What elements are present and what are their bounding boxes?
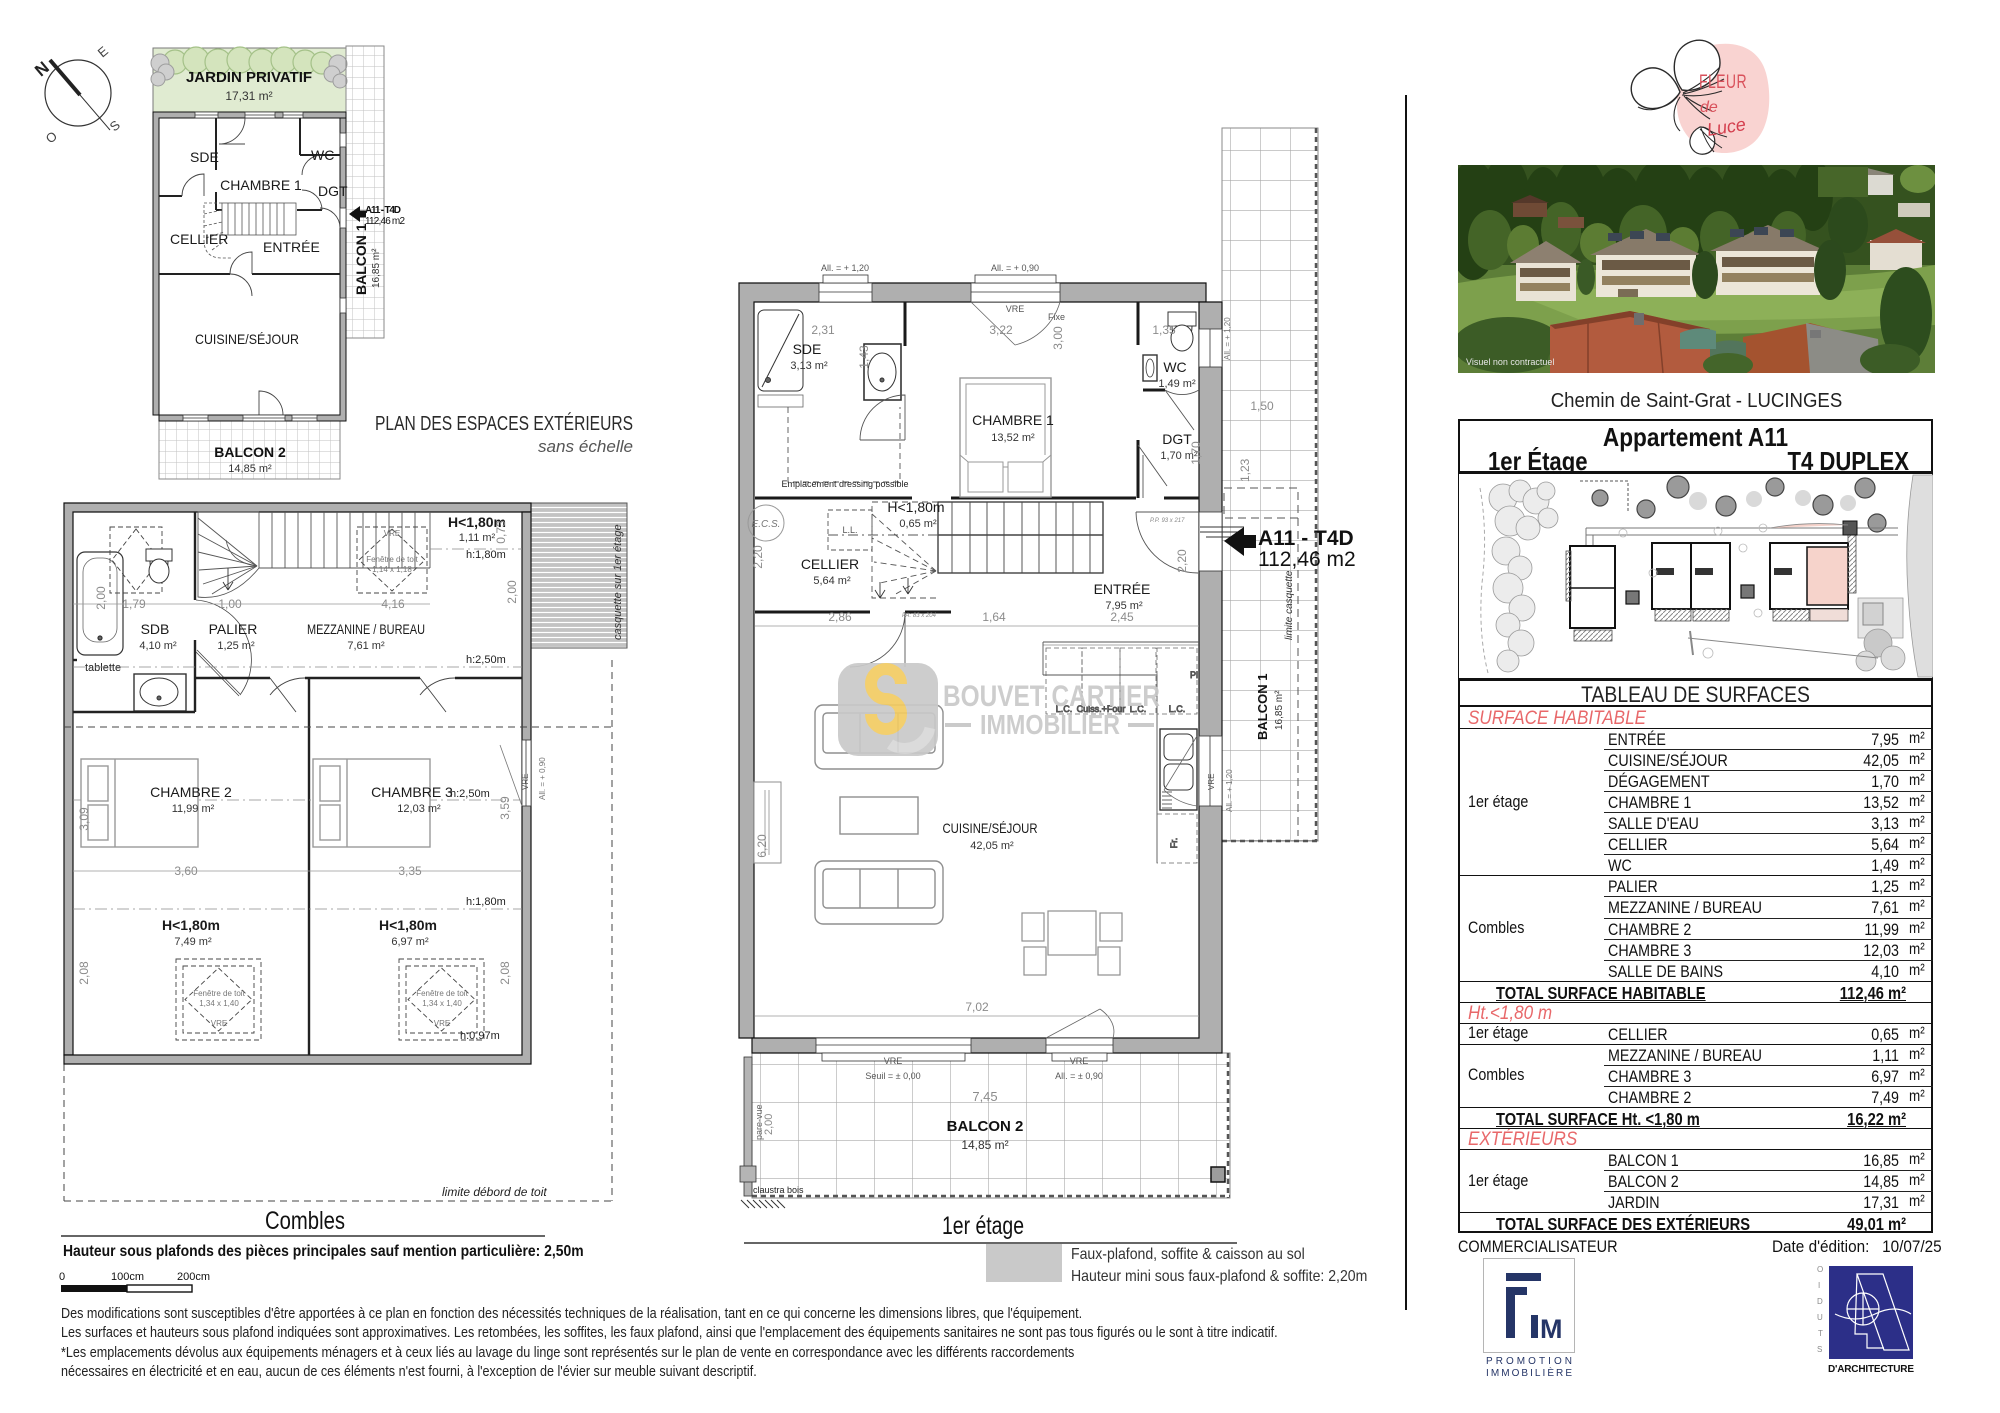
svg-text:casquette sur 1er étage: casquette sur 1er étage	[612, 524, 624, 640]
svg-text:1,70: 1,70	[1189, 441, 1203, 465]
svg-text:3,59: 3,59	[498, 796, 512, 820]
svg-text:CELLIER: CELLIER	[801, 556, 859, 572]
svg-text:L.L.: L.L.	[842, 525, 857, 535]
svg-text:T: T	[1818, 1329, 1823, 1338]
svg-text:JARDIN PRIVATIF: JARDIN PRIVATIF	[186, 69, 312, 86]
svg-text:14,85 m²: 14,85 m²	[228, 463, 272, 475]
svg-text:2,45: 2,45	[1110, 610, 1134, 624]
svg-text:Fenêtre de toit: Fenêtre de toit	[366, 555, 418, 564]
svg-text:sans échelle: sans échelle	[538, 437, 633, 456]
svg-text:BALCON 2: BALCON 2	[947, 1118, 1024, 1135]
svg-text:SDE: SDE	[190, 149, 219, 165]
svg-text:BALCON 1: BALCON 1	[353, 223, 369, 295]
svg-text:112,46 m2: 112,46 m2	[365, 216, 405, 227]
svg-text:H<1,80m: H<1,80m	[887, 499, 944, 515]
svg-text:H<1,80m: H<1,80m	[162, 917, 220, 933]
svg-text:100cm: 100cm	[111, 1271, 144, 1283]
svg-text:13,52 m²: 13,52 m²	[991, 432, 1035, 444]
svg-text:A11 - T4D: A11 - T4D	[1258, 527, 1354, 550]
svg-text:7,02: 7,02	[965, 1000, 989, 1014]
svg-text:Combles: Combles	[265, 1207, 345, 1235]
svg-text:SDE: SDE	[793, 341, 822, 357]
svg-text:2,00: 2,00	[505, 580, 519, 604]
svg-text:limite débord de toit: limite débord de toit	[442, 1185, 547, 1199]
svg-text:6,97 m²: 6,97 m²	[391, 936, 429, 948]
svg-text:Fenêtre de toit: Fenêtre de toit	[193, 989, 245, 998]
svg-text:All. = + 1,20: All. = + 1,20	[821, 263, 869, 273]
svg-text:tablette: tablette	[85, 662, 121, 674]
svg-text:4,10 m²: 4,10 m²	[139, 640, 177, 652]
svg-text:h:1,80m: h:1,80m	[466, 549, 506, 561]
svg-text:112,46 m2: 112,46 m2	[1258, 548, 1356, 571]
svg-text:CHAMBRE 1: CHAMBRE 1	[972, 412, 1054, 428]
svg-text:SDB: SDB	[141, 621, 170, 637]
svg-text:Fixe: Fixe	[1048, 312, 1065, 322]
svg-text:2,00: 2,00	[763, 1114, 775, 1135]
svg-text:h:0,97m: h:0,97m	[460, 1030, 500, 1042]
svg-text:O: O	[43, 128, 60, 146]
svg-text:P.P. 93 x 217: P.P. 93 x 217	[1150, 518, 1185, 524]
svg-text:WC: WC	[1163, 359, 1186, 375]
svg-text:D: D	[1817, 1297, 1823, 1306]
svg-text:3,22: 3,22	[989, 323, 1013, 337]
svg-text:VRE: VRE	[521, 774, 530, 790]
svg-text:Fenêtre de toit: Fenêtre de toit	[416, 989, 468, 998]
svg-text:1,35: 1,35	[1152, 323, 1176, 337]
svg-text:I: I	[1818, 1281, 1820, 1290]
svg-text:3,13 m²: 3,13 m²	[790, 360, 828, 372]
svg-text:7,49 m²: 7,49 m²	[174, 936, 212, 948]
svg-text:FLEUR: FLEUR	[1699, 72, 1747, 93]
svg-text:2,20: 2,20	[1175, 549, 1189, 573]
svg-text:M: M	[1540, 1314, 1563, 1344]
svg-text:VRE: VRE	[211, 1019, 227, 1028]
svg-text:VRE: VRE	[434, 1019, 450, 1028]
svg-text:BALCON 1: BALCON 1	[1255, 674, 1270, 740]
svg-text:14,85 m²: 14,85 m²	[961, 1138, 1008, 1152]
svg-text:claustra bois: claustra bois	[753, 1185, 804, 1195]
svg-text:5,64 m²: 5,64 m²	[813, 575, 851, 587]
svg-text:VRE: VRE	[1006, 304, 1025, 314]
svg-text:Seuil = ± 0,00: Seuil = ± 0,00	[865, 1071, 920, 1081]
svg-text:2,86: 2,86	[828, 610, 852, 624]
svg-text:ENTRÉE: ENTRÉE	[263, 239, 320, 255]
svg-text:16,85 m²: 16,85 m²	[371, 248, 382, 288]
svg-text:All. = + 0,90: All. = + 0,90	[991, 263, 1039, 273]
svg-text:16,85 m²: 16,85 m²	[1274, 690, 1285, 730]
svg-text:S: S	[1817, 1345, 1822, 1354]
svg-text:WC: WC	[311, 147, 334, 163]
svg-text:VRE: VRE	[1070, 1056, 1089, 1066]
svg-text:BALCON 2: BALCON 2	[214, 444, 286, 460]
svg-text:2,08: 2,08	[77, 961, 91, 985]
svg-text:CELLIER: CELLIER	[170, 231, 228, 247]
svg-text:1,23: 1,23	[1238, 458, 1252, 482]
svg-text:2,00: 2,00	[94, 586, 108, 610]
svg-text:limite casquette: limite casquette	[1284, 570, 1295, 640]
svg-text:3,09: 3,09	[77, 807, 91, 831]
svg-text:CUISINE/SÉJOUR: CUISINE/SÉJOUR	[195, 331, 299, 347]
svg-text:U: U	[1817, 1313, 1823, 1322]
svg-text:7,61 m²: 7,61 m²	[347, 640, 385, 652]
svg-text:All. = + 1,20: All. = + 1,20	[1225, 769, 1234, 812]
svg-text:CHAMBRE 1: CHAMBRE 1	[220, 177, 302, 193]
svg-text:200cm: 200cm	[177, 1271, 210, 1283]
svg-text:1,43: 1,43	[857, 345, 871, 369]
svg-text:1,34 x 1,40: 1,34 x 1,40	[199, 999, 239, 1008]
svg-text:D'ARCHITECTURE: D'ARCHITECTURE	[1828, 1364, 1914, 1375]
svg-text:Emplacement dressing possible: Emplacement dressing possible	[781, 479, 908, 489]
svg-text:0,73: 0,73	[494, 520, 508, 544]
svg-text:E: E	[95, 43, 112, 60]
svg-text:1,50: 1,50	[1250, 399, 1274, 413]
svg-text:h:2,50m: h:2,50m	[450, 788, 490, 800]
svg-text:2,31: 2,31	[811, 323, 835, 337]
svg-text:IMMOBILIER: IMMOBILIER	[980, 709, 1120, 740]
svg-text:VRE: VRE	[884, 1056, 903, 1066]
svg-text:1,11 m²: 1,11 m²	[459, 532, 496, 544]
svg-text:PA: 83 x 204: PA: 83 x 204	[902, 613, 937, 619]
svg-text:PLAN DES ESPACES EXTÉRIEURS: PLAN DES ESPACES EXTÉRIEURS	[375, 412, 633, 435]
svg-text:1,49 m²: 1,49 m²	[1158, 378, 1196, 390]
svg-text:1er étage: 1er étage	[942, 1212, 1024, 1240]
svg-text:2,08: 2,08	[498, 961, 512, 985]
svg-text:DGT: DGT	[318, 183, 348, 199]
svg-text:VRE: VRE	[1207, 774, 1216, 790]
svg-text:CHAMBRE 3: CHAMBRE 3	[371, 784, 453, 800]
svg-text:Pl: Pl	[1190, 670, 1198, 680]
svg-text:DGT: DGT	[1162, 431, 1192, 447]
svg-text:IMMOBILIÈRE: IMMOBILIÈRE	[1486, 1366, 1572, 1378]
svg-text:E.C.S.: E.C.S.	[752, 519, 781, 530]
svg-text:42,05 m²: 42,05 m²	[970, 840, 1014, 852]
svg-text:VRE: VRE	[384, 529, 400, 538]
svg-text:1,14 x 1,18: 1,14 x 1,18	[372, 565, 412, 574]
svg-text:All. = ± 0,90: All. = ± 0,90	[1055, 1071, 1103, 1081]
svg-text:1,25 m²: 1,25 m²	[217, 640, 255, 652]
svg-text:1,64: 1,64	[982, 610, 1006, 624]
svg-text:CHAMBRE 2: CHAMBRE 2	[150, 784, 232, 800]
svg-text:h:1,80m: h:1,80m	[466, 896, 506, 908]
svg-text:CUISINE/SÉJOUR: CUISINE/SÉJOUR	[943, 820, 1038, 836]
svg-text:h:2,50m: h:2,50m	[466, 654, 506, 666]
svg-text:All. = + 0,90: All. = + 0,90	[538, 757, 547, 800]
svg-text:3,00: 3,00	[1051, 326, 1065, 350]
svg-text:17,31 m²: 17,31 m²	[225, 89, 272, 103]
svg-text:0,65 m²: 0,65 m²	[899, 518, 937, 530]
svg-text:6,20: 6,20	[755, 834, 769, 858]
svg-text:ENTRÉE: ENTRÉE	[1094, 581, 1151, 597]
svg-text:12,03 m²: 12,03 m²	[397, 803, 441, 815]
svg-text:H<1,80m: H<1,80m	[379, 917, 437, 933]
svg-text:PROMOTION: PROMOTION	[1486, 1356, 1572, 1367]
svg-text:MEZZANINE / BUREAU: MEZZANINE / BUREAU	[307, 621, 425, 637]
svg-text:L.C.: L.C.	[1169, 704, 1186, 714]
svg-text:Fr.: Fr.	[1169, 838, 1179, 849]
svg-text:All. = + 1,20: All. = + 1,20	[1223, 317, 1232, 360]
svg-text:2,20: 2,20	[751, 545, 765, 569]
svg-text:7,45: 7,45	[972, 1089, 997, 1104]
svg-text:0: 0	[59, 1271, 65, 1283]
svg-text:O: O	[1817, 1265, 1823, 1274]
svg-text:PALIER: PALIER	[209, 621, 258, 637]
svg-text:A11 - T4D: A11 - T4D	[365, 205, 401, 216]
svg-text:de: de	[1700, 99, 1718, 116]
svg-text:1,34 x 1,40: 1,34 x 1,40	[422, 999, 462, 1008]
svg-text:S: S	[107, 117, 124, 134]
svg-text:11,99 m²: 11,99 m²	[172, 803, 215, 815]
svg-text:Visuel non contractuel: Visuel non contractuel	[1466, 357, 1554, 367]
